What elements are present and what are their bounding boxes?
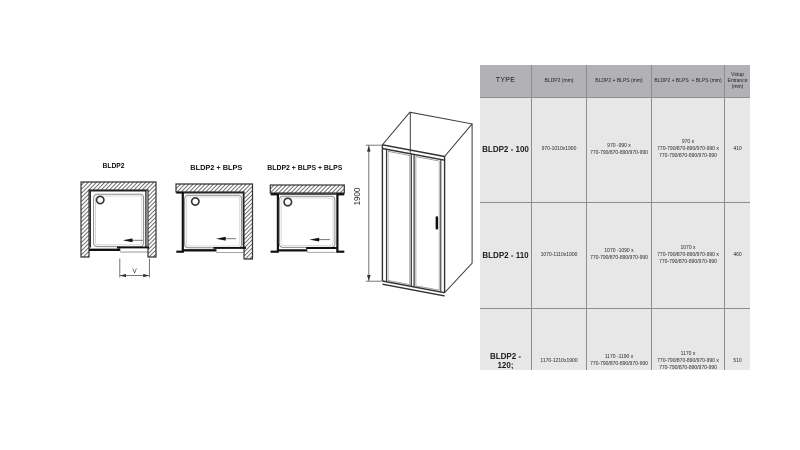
svg-text:BLDP2: BLDP2 xyxy=(103,163,125,170)
svg-text:1900: 1900 xyxy=(353,187,362,205)
svg-text:V: V xyxy=(132,268,137,275)
svg-text:BLDP2 + BLPS: BLDP2 + BLPS xyxy=(190,165,242,172)
svg-text:BLDP2 + BLPS + BLPS: BLDP2 + BLPS + BLPS xyxy=(267,165,342,172)
